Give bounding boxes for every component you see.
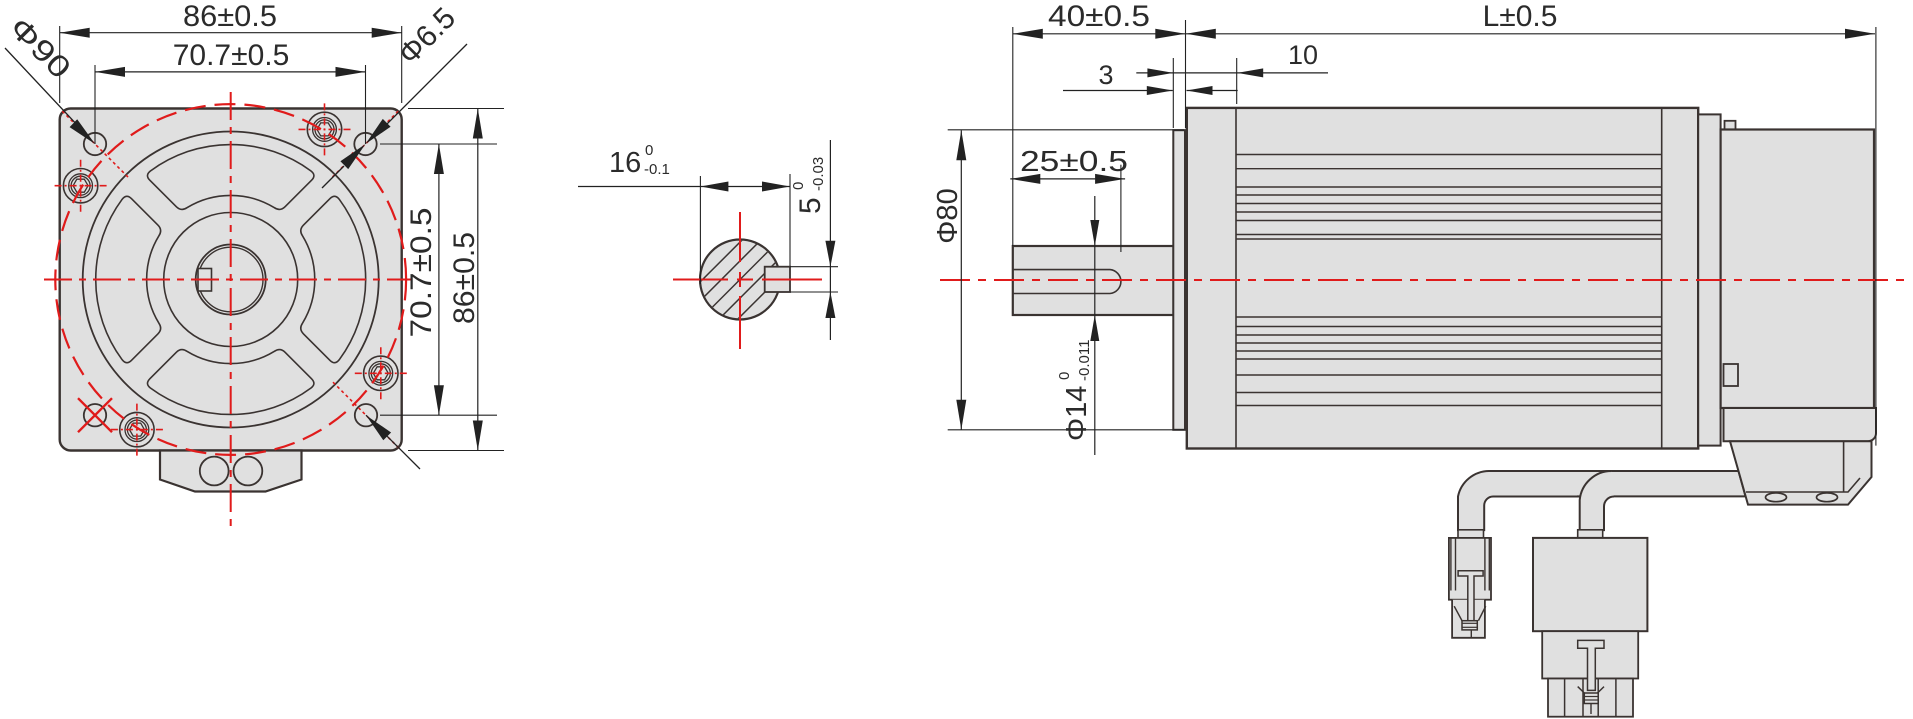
svg-text:Φ6.5: Φ6.5 bbox=[392, 1, 462, 71]
svg-text:86±0.5: 86±0.5 bbox=[448, 232, 481, 324]
svg-text:Φ90: Φ90 bbox=[3, 11, 77, 85]
svg-text:0: 0 bbox=[790, 182, 807, 190]
svg-text:-0.1: -0.1 bbox=[644, 161, 670, 178]
svg-text:-0.011: -0.011 bbox=[1076, 340, 1093, 381]
svg-text:L±0.5: L±0.5 bbox=[1483, 0, 1558, 33]
svg-text:3: 3 bbox=[1098, 60, 1113, 90]
svg-text:Φ14: Φ14 bbox=[1061, 386, 1093, 441]
svg-text:16: 16 bbox=[609, 147, 641, 179]
svg-text:-0.03: -0.03 bbox=[810, 157, 827, 191]
svg-text:40±0.5: 40±0.5 bbox=[1048, 0, 1150, 33]
svg-text:5: 5 bbox=[794, 197, 827, 214]
svg-text:0: 0 bbox=[1056, 372, 1073, 380]
svg-text:70.7±0.5: 70.7±0.5 bbox=[173, 39, 290, 72]
svg-text:70.7±0.5: 70.7±0.5 bbox=[405, 208, 438, 338]
svg-text:86±0.5: 86±0.5 bbox=[183, 0, 277, 33]
svg-text:25±0.5: 25±0.5 bbox=[1020, 146, 1128, 178]
svg-text:0: 0 bbox=[645, 142, 653, 159]
svg-text:Φ80: Φ80 bbox=[932, 188, 964, 243]
svg-text:10: 10 bbox=[1288, 40, 1318, 70]
